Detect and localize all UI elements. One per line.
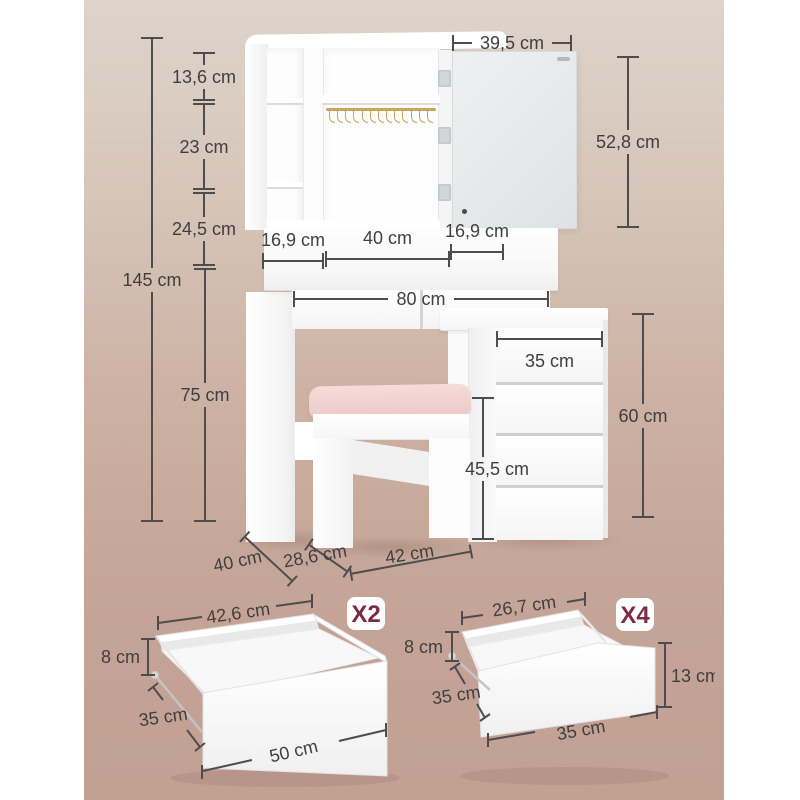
dim-mirror-door-width-label: 39,5 cm	[472, 34, 552, 52]
unit-drawer-4	[496, 488, 603, 540]
door-knob	[462, 209, 467, 214]
dim-tabletop-width-label: 80 cm	[388, 290, 453, 308]
dim-total-height-label: 145 cm	[122, 268, 181, 292]
dim-small-front-height-line	[658, 643, 672, 707]
hook-icon	[411, 110, 417, 123]
hook-icon	[378, 110, 384, 123]
door-hinge-middle	[438, 127, 451, 144]
hook-icon	[337, 110, 343, 123]
dim-stool-seat-height-label: 45,5 cm	[465, 457, 529, 481]
drawer-unit-right-edge	[603, 320, 608, 538]
dim-total-height: 145 cm	[130, 37, 174, 522]
small-drawer-diagram: 26,7 cm 8 cm 35 cm 35 cm 13 cm X4	[405, 590, 715, 790]
dim-small-front-height-label: 13 cm	[671, 666, 715, 686]
drawer-shadow	[460, 767, 670, 785]
hutch-divider-panel	[303, 48, 324, 224]
dim-drawer-cabinet-height: 60 cm	[621, 313, 665, 518]
hook-icon	[402, 110, 408, 123]
hook-icon	[329, 110, 335, 123]
dim-wide-side-height-label: 8 cm	[101, 647, 140, 667]
dim-right-cubby-width: 16,9 cm	[450, 222, 504, 260]
dim-left-cubby-width-label: 16,9 cm	[261, 231, 325, 253]
dim-tabletop-width: 80 cm	[293, 290, 549, 308]
dim-mirror-door-height: 52,8 cm	[606, 56, 650, 228]
dim-upper-shelf-label: 13,6 cm	[172, 65, 236, 89]
stool-left-leg	[313, 438, 353, 548]
dim-wide-side-height-line	[141, 639, 155, 675]
dim-drawer-cabinet-width: 35 cm	[496, 331, 603, 370]
dim-mirror-door-height-label: 52,8 cm	[596, 130, 660, 154]
stool-seat-frame	[313, 414, 469, 440]
hook-icon	[362, 110, 368, 123]
hook-icon	[427, 110, 433, 123]
jewelry-hooks	[329, 110, 433, 123]
dim-upper-shelf-height: 13,6 cm	[182, 52, 226, 101]
dim-drawer-cabinet-width-label: 35 cm	[525, 347, 574, 370]
dimension-diagram: 145 cm 13,6 cm 23 cm 24,5 cm 75 cm 52,8 …	[0, 0, 800, 800]
dim-lower-shelf-height: 24,5 cm	[182, 192, 226, 266]
desk-left-panel	[246, 292, 295, 542]
hook-icon	[394, 110, 400, 123]
quantity-badge-x2-label: X2	[351, 601, 380, 628]
unit-drawer-2	[496, 385, 603, 433]
hook-icon	[353, 110, 359, 123]
dim-drawer-cabinet-height-label: 60 cm	[618, 404, 667, 428]
dim-middle-shelf-label: 23 cm	[179, 135, 228, 159]
hook-icon	[419, 110, 425, 123]
dim-table-height: 75 cm	[183, 268, 227, 522]
door-hinge-bottom	[438, 184, 451, 201]
dim-mirror-door-width: 39,5 cm	[452, 34, 572, 52]
wide-drawer-diagram: 42,6 cm 8 cm 35 cm 50 cm X2	[90, 590, 400, 790]
quantity-badge-x4-label: X4	[620, 602, 650, 629]
dim-stool-seat-height: 45,5 cm	[461, 397, 505, 540]
dim-small-side-height-line	[445, 632, 459, 661]
door-handle	[557, 57, 570, 61]
dim-right-cubby-width-label: 16,9 cm	[445, 222, 509, 244]
hook-icon	[370, 110, 376, 123]
dim-left-cubby-width: 16,9 cm	[262, 231, 324, 269]
dim-center-cubby-width-label: 40 cm	[363, 229, 412, 251]
hook-icon	[386, 110, 392, 123]
dim-lower-shelf-label: 24,5 cm	[172, 217, 236, 241]
hutch-left-side-panel	[245, 44, 268, 230]
dim-middle-shelf-height: 23 cm	[182, 103, 226, 190]
center-cubby-shelf	[322, 95, 440, 105]
left-cubby-shelf-lower	[267, 182, 303, 189]
dim-wide-depth-label: 35 cm	[137, 704, 188, 731]
hook-icon	[345, 110, 351, 123]
left-cubby-shelf-upper	[267, 98, 303, 105]
door-hinge-top	[438, 70, 451, 87]
hutch-center-cubby	[322, 48, 440, 224]
dim-small-depth-label: 35 cm	[430, 682, 481, 709]
dim-center-cubby-width: 40 cm	[325, 229, 450, 267]
mirror-door	[452, 51, 577, 229]
dim-table-height-label: 75 cm	[180, 383, 229, 407]
dim-small-side-height-label: 8 cm	[405, 637, 443, 657]
hutch-left-cubby-column	[267, 48, 303, 222]
